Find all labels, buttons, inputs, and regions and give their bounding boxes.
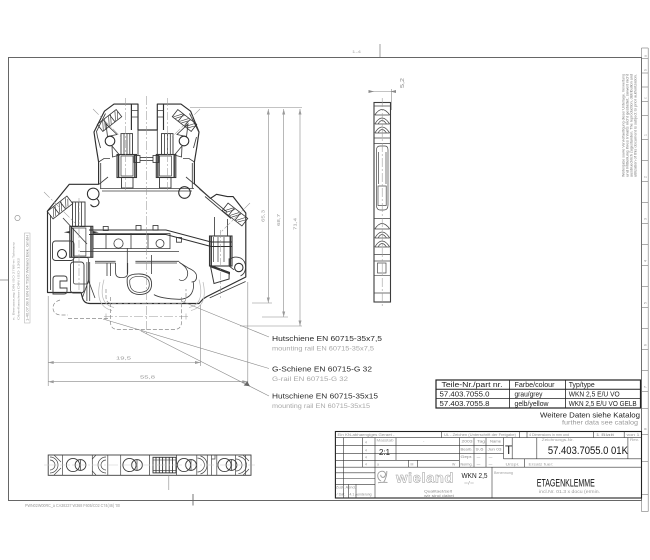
- svg-text:Teile-Nr./part nr.: Teile-Nr./part nr.: [442, 382, 503, 389]
- svg-text:7: 7: [644, 386, 648, 388]
- svg-text:Urspr.: Urspr.: [506, 462, 520, 466]
- svg-text:Benennung: Benennung: [494, 471, 513, 475]
- svg-text:Jun 03: Jun 03: [488, 448, 502, 452]
- svg-text:T: T: [505, 443, 513, 457]
- svg-text:Ersatz fuer:: Ersatz fuer:: [529, 462, 554, 466]
- svg-text:n. Bemassung DIN ISO 2768-m To: n. Bemassung DIN ISO 2768-m Toleranz: [12, 241, 16, 320]
- svg-text:PWN02W00RC_a CA38237 W368 F605: PWN02W00RC_a CA38237 W368 F605/C02 C74(4…: [25, 503, 121, 508]
- svg-text:6: 6: [644, 344, 648, 346]
- svg-text:wir sind dabei: wir sind dabei: [424, 494, 454, 498]
- svg-text:9.6: 9.6: [476, 448, 484, 452]
- svg-text:1 Blatt: 1 Blatt: [596, 433, 614, 437]
- svg-text:1-4: 1-4: [352, 50, 361, 54]
- svg-text:4: 4: [365, 463, 367, 467]
- svg-text:further data see catalog: further data see catalog: [562, 421, 638, 427]
- svg-text:WKN 2,5: WKN 2,5: [462, 471, 488, 480]
- svg-text:Bearb.: Bearb.: [461, 448, 473, 452]
- svg-text:1-40.07.08.6 BN 04 TS35 Wielan: 1-40.07.08.6 BN 04 TS35 Wieland Elek. Gm…: [26, 234, 30, 321]
- svg-text:2003: 2003: [462, 440, 473, 444]
- svg-text:Typ/type: Typ/type: [569, 382, 595, 389]
- svg-text:57.403.7055.8: 57.403.7055.8: [440, 401, 490, 408]
- svg-text:ETAGENKLEMME: ETAGENKLEMME: [537, 477, 595, 489]
- svg-text:=/=: =/=: [464, 481, 475, 486]
- svg-text:UL - Zeichen (Unterschrift der: UL - Zeichen (Unterschrift der Freigabe): [444, 433, 516, 437]
- svg-text:Hutschiene EN 60715-35x7,5: Hutschiene EN 60715-35x7,5: [272, 334, 382, 343]
- svg-text:von 1: von 1: [627, 433, 640, 437]
- svg-text:65,3: 65,3: [261, 210, 267, 222]
- svg-text:4.1 Aenderung: 4.1 Aenderung: [350, 493, 372, 497]
- svg-text:WKN 2,5 E/U VO GELB: WKN 2,5 E/U VO GELB: [569, 401, 637, 408]
- svg-text:c: c: [644, 97, 648, 99]
- svg-text:WKN 2,5 E/U VO: WKN 2,5 E/U VO: [569, 392, 621, 399]
- svg-text:1: 1: [644, 134, 648, 136]
- svg-text:68,7: 68,7: [276, 214, 282, 226]
- svg-text:Farbe/colour: Farbe/colour: [515, 382, 556, 389]
- svg-text:57.403.7055.0: 57.403.7055.0: [440, 392, 490, 399]
- svg-text:4: 4: [365, 456, 367, 460]
- svg-text:Name: Name: [490, 440, 501, 444]
- svg-text:/ Dat.: / Dat.: [337, 493, 346, 497]
- svg-text:G-Schiene EN 60715-G 32: G-Schiene EN 60715-G 32: [272, 365, 372, 374]
- svg-text:Qualitaet/seit: Qualitaet/seit: [424, 490, 452, 494]
- svg-text:4: 4: [365, 449, 367, 453]
- svg-text:8: 8: [644, 428, 648, 430]
- svg-text:71,4: 71,4: [293, 218, 299, 230]
- svg-text:Zust. Aend.: Zust. Aend.: [336, 486, 356, 490]
- svg-text:incl.Nr. 01.3 x docu (ermin.: incl.Nr. 01.3 x docu (ermin.: [539, 489, 600, 494]
- svg-text:5,2: 5,2: [400, 78, 406, 88]
- svg-text:G-rail EN 60715-G 32: G-rail EN 60715-G 32: [272, 377, 349, 383]
- svg-text:5: 5: [644, 302, 648, 304]
- svg-text:Weitere Daten siehe Katalog: Weitere Daten siehe Katalog: [540, 410, 640, 419]
- svg-text:mounting rail EN 60715-35x7,5: mounting rail EN 60715-35x7,5: [272, 347, 375, 353]
- svg-text:4: 4: [644, 260, 648, 262]
- svg-text:4: 4: [365, 441, 367, 445]
- svg-text:Tag: Tag: [477, 440, 485, 444]
- svg-text:55,8: 55,8: [140, 375, 156, 381]
- svg-text:mounting rail EN 60715-35x15: mounting rail EN 60715-35x15: [272, 404, 371, 410]
- svg-text:2: 2: [644, 176, 648, 178]
- svg-text:Ein KN-abhaengiges Geraet -: Ein KN-abhaengiges Geraet -: [338, 433, 395, 437]
- svg-text:Rev.: Rev.: [630, 438, 639, 442]
- svg-text:3: 3: [644, 218, 648, 220]
- svg-text:a: a: [644, 55, 648, 57]
- svg-text:57.403.7055.0 01K: 57.403.7055.0 01K: [548, 445, 629, 457]
- svg-text:Gepr.: Gepr.: [461, 455, 473, 459]
- svg-text:Oberflaechen DIN ISO 1302: Oberflaechen DIN ISO 1302: [17, 258, 21, 320]
- svg-text:4 Dimensions in mm und: 4 Dimensions in mm und: [529, 433, 569, 437]
- svg-text:Normg.: Normg.: [461, 462, 473, 466]
- svg-text:gelb/yellow: gelb/yellow: [515, 401, 550, 408]
- svg-text:a: a: [377, 463, 379, 467]
- svg-text:wieland: wieland: [395, 471, 454, 486]
- svg-text:Masstab: Masstab: [377, 439, 394, 443]
- svg-text:b: b: [644, 69, 648, 71]
- svg-text:grau/grey: grau/grey: [515, 392, 543, 399]
- svg-text:2:1: 2:1: [379, 447, 390, 457]
- svg-text:utilization of this document i: utilization of this document is subject …: [634, 74, 638, 177]
- svg-text:M: M: [411, 463, 414, 467]
- svg-text:Zeichnungs-Nr.: Zeichnungs-Nr.: [542, 438, 574, 442]
- svg-text:19,5: 19,5: [116, 356, 132, 362]
- svg-text:Hutschiene EN 60715-35x15: Hutschiene EN 60715-35x15: [272, 392, 378, 401]
